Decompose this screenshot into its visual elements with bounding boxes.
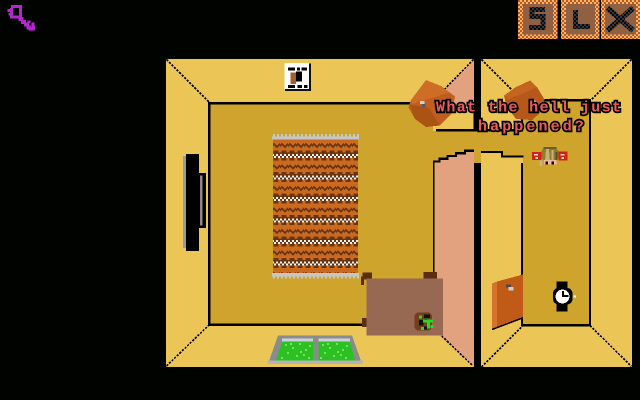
svg-text:What the hell just: What the hell just	[436, 100, 622, 117]
svg-text:happened?: happened?	[478, 119, 587, 136]
